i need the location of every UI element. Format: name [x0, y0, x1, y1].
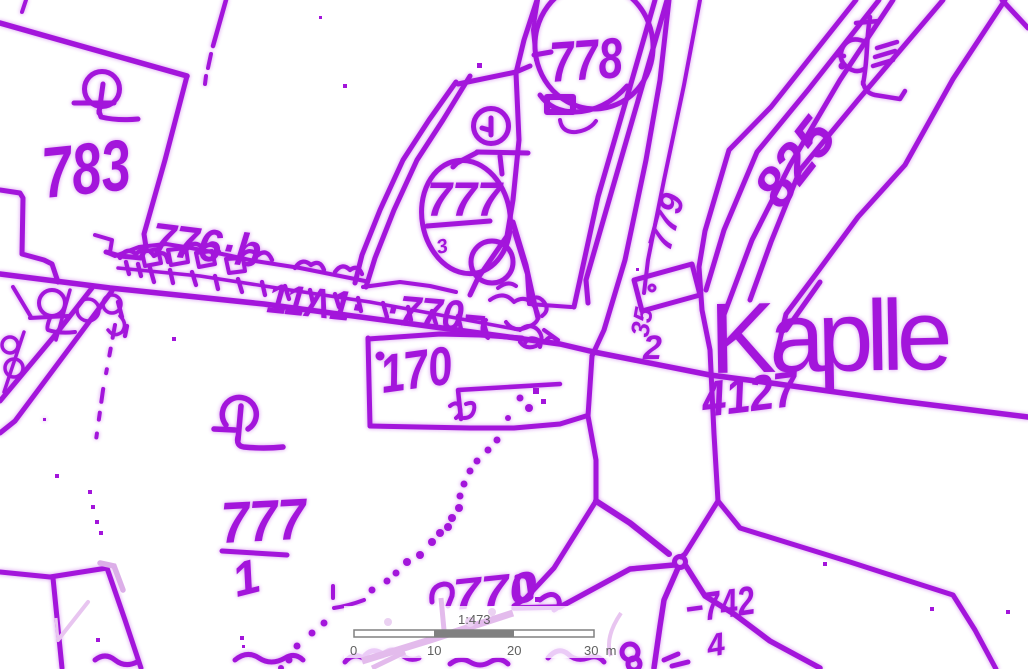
svg-text:0: 0: [350, 643, 357, 658]
svg-text:20: 20: [507, 643, 521, 658]
svg-text:10: 10: [427, 643, 441, 658]
svg-text:1:473: 1:473: [458, 612, 491, 627]
svg-text:30 m: 30 m: [584, 643, 617, 658]
